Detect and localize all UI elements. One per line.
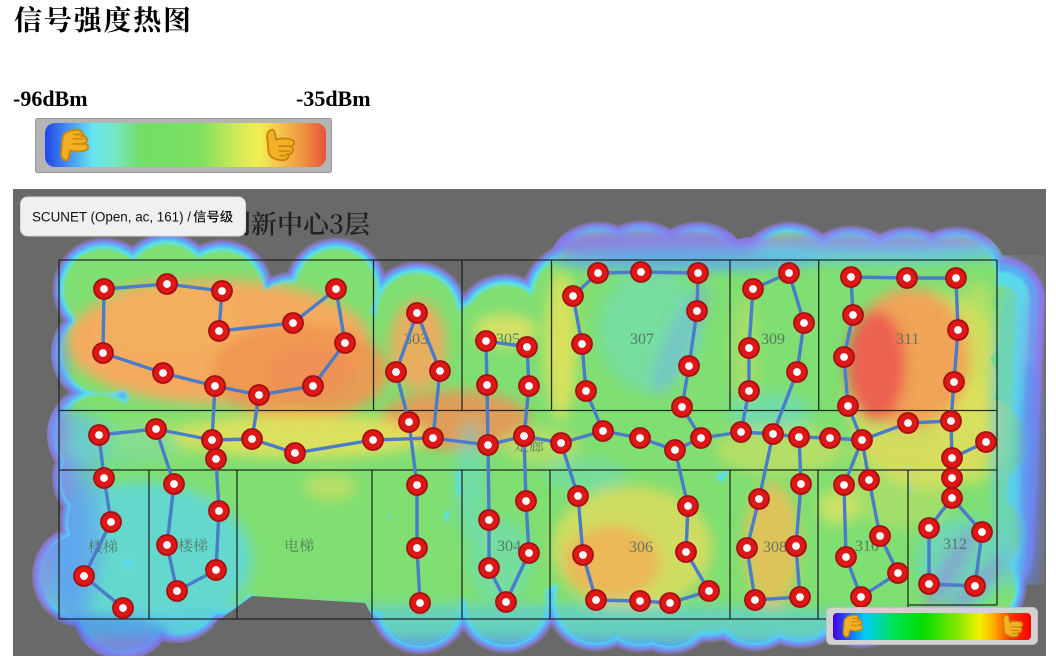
svg-text:312: 312: [943, 536, 967, 553]
svg-text:306: 306: [629, 539, 653, 556]
svg-text:304: 304: [497, 538, 521, 555]
svg-text:SCUNET (Open, ac, 161) /: SCUNET (Open, ac, 161) /: [32, 210, 191, 225]
svg-text:309: 309: [761, 331, 785, 348]
svg-text:308: 308: [763, 539, 787, 556]
svg-text:307: 307: [630, 331, 654, 348]
svg-text:311: 311: [896, 331, 919, 348]
